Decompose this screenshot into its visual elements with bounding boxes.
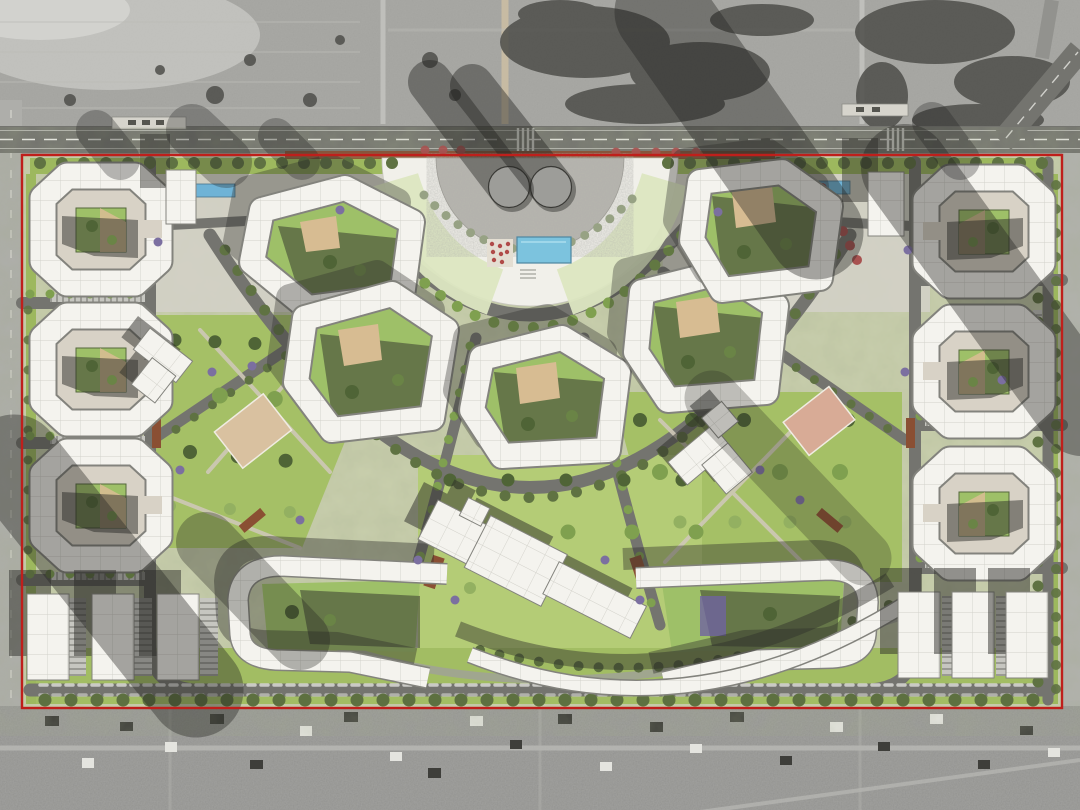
ring-block-2 xyxy=(281,274,446,430)
masterplan-screenshot xyxy=(0,0,1080,810)
south-east-slabs xyxy=(880,568,1048,678)
purple-planting-bed xyxy=(700,596,726,636)
pool xyxy=(517,237,571,263)
ring-block-3 xyxy=(457,318,618,456)
masterplan-svg xyxy=(0,0,1080,810)
